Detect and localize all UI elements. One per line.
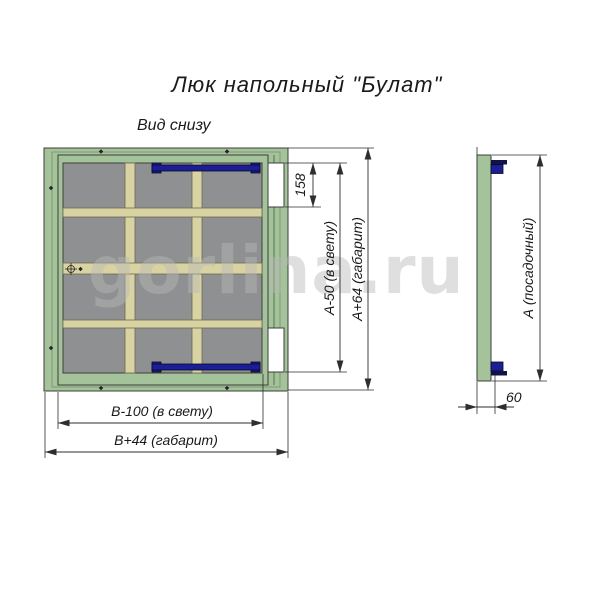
outer-frame (44, 148, 288, 391)
dimension-width-overall: В+44 (габарит) (45, 432, 288, 452)
screw (99, 386, 103, 390)
dimension-seat-height: А (посадочный) (520, 155, 540, 381)
dim-text-height-clear: А-50 (в свету) (321, 221, 337, 316)
screw (225, 149, 229, 153)
side-hinge-bottom (491, 362, 507, 376)
dim-text-height-overall: А+64 (габарит) (349, 217, 365, 322)
rib-horizontal (63, 208, 262, 217)
dim-text-width-clear: В-100 (в свету) (111, 403, 213, 419)
outer-frame-bevel (52, 152, 280, 387)
dim-text-depth: 60 (506, 389, 522, 405)
dimension-height-overall: А+64 (габарит) (349, 148, 368, 390)
screw (49, 186, 53, 190)
side-hinge-top (491, 160, 507, 174)
screws (49, 149, 229, 390)
dimension-hinge-length: 158 (292, 163, 313, 207)
drawing-title: Люк напольный "Булат" (7, 72, 600, 98)
lid-frame (58, 155, 268, 385)
dimension-width-clear: В-100 (в свету) (58, 403, 263, 423)
dimension-height-clear: А-50 (в свету) (321, 163, 340, 372)
screw (49, 346, 53, 350)
lid-panel-sheet (63, 163, 262, 373)
extension-lines-side (477, 147, 547, 414)
side-view (477, 155, 507, 381)
view-label: Вид снизу (137, 117, 210, 135)
screw (225, 386, 229, 390)
main-view (44, 148, 288, 391)
bottom-handle-bar (152, 362, 260, 372)
stiffening-ribs (63, 163, 262, 373)
dim-text-width-overall: В+44 (габарит) (114, 432, 218, 448)
screw (99, 149, 103, 153)
rib-vertical (192, 163, 202, 373)
rib-horizontal (63, 263, 262, 274)
dim-text-hinge-length: 158 (292, 173, 308, 197)
dimension-depth: 60 (458, 389, 522, 407)
dim-text-seat-height: А (посадочный) (520, 218, 536, 320)
top-handle-bar (152, 163, 260, 173)
drawing-sheet: gorlina.ru 158 А-50 (в свету (0, 0, 600, 600)
extension-lines-main (45, 148, 374, 458)
rib-horizontal (63, 320, 262, 328)
watermark: gorlina.ru (88, 238, 465, 304)
rib-vertical (125, 163, 135, 373)
center-mark (65, 263, 83, 275)
side-profile (477, 155, 491, 381)
hinge-cutout-bottom (268, 328, 284, 372)
hinge-cutout-top (268, 163, 284, 207)
